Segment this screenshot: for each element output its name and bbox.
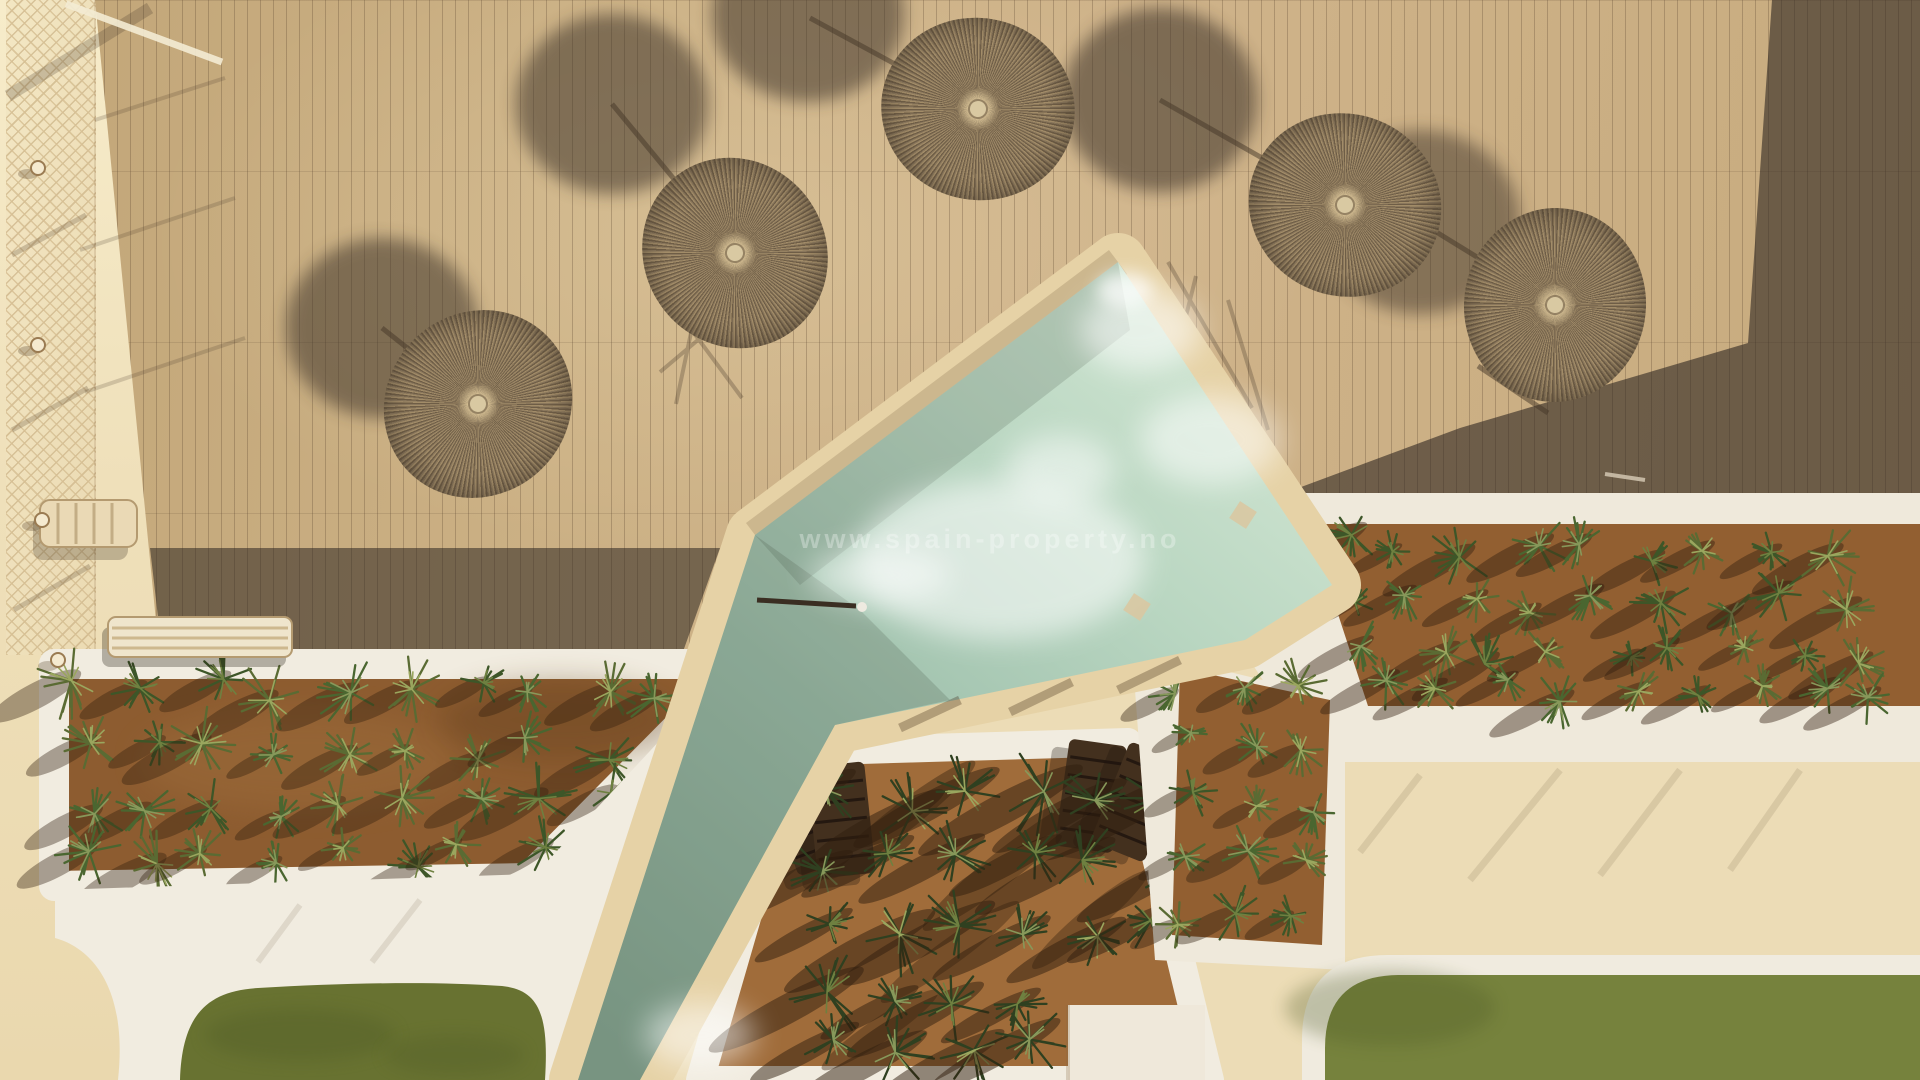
scene-detail <box>1600 770 1680 875</box>
scene-detail <box>35 513 49 527</box>
parasol-hub <box>1546 296 1563 313</box>
scene-detail <box>40 500 137 547</box>
parasol-hub <box>969 100 988 119</box>
scene-detail <box>1360 775 1420 852</box>
scene-detail <box>85 338 245 392</box>
scene-detail <box>51 653 65 667</box>
scene-detail <box>810 547 950 603</box>
scene-detail <box>205 1009 395 1061</box>
left-lawn-area <box>55 874 601 1080</box>
parasol-hub <box>1335 195 1356 216</box>
scene-detail <box>31 161 45 175</box>
watermark-text: www.spain-property.no <box>799 524 1180 554</box>
stacked-sunbeds <box>102 617 292 667</box>
parasol-hub <box>724 242 746 264</box>
scene-detail <box>857 602 867 612</box>
parasol-hub <box>467 393 490 416</box>
scene-detail <box>1140 395 1280 485</box>
single-lounger <box>33 500 137 560</box>
scene-detail <box>645 1003 755 1067</box>
white-pad <box>1068 1005 1205 1080</box>
scene-detail <box>385 1035 525 1075</box>
website-watermark: www.spain-property.no <box>760 524 1220 555</box>
walkway-shadow-streaks <box>1360 770 1800 880</box>
scene-detail <box>80 198 235 250</box>
scene-detail <box>14 566 90 610</box>
scene-detail <box>31 338 45 352</box>
scene-detail <box>1730 770 1800 870</box>
scene-detail <box>1470 770 1560 880</box>
aerial-photo-scene: www.spain-property.no <box>0 0 1920 1080</box>
scene-detail <box>12 388 88 430</box>
scene-detail <box>12 215 86 255</box>
scene-detail <box>1285 970 1495 1046</box>
scene-detail <box>1097 272 1153 308</box>
scene-detail <box>95 78 225 120</box>
scene-detail <box>8 8 150 96</box>
